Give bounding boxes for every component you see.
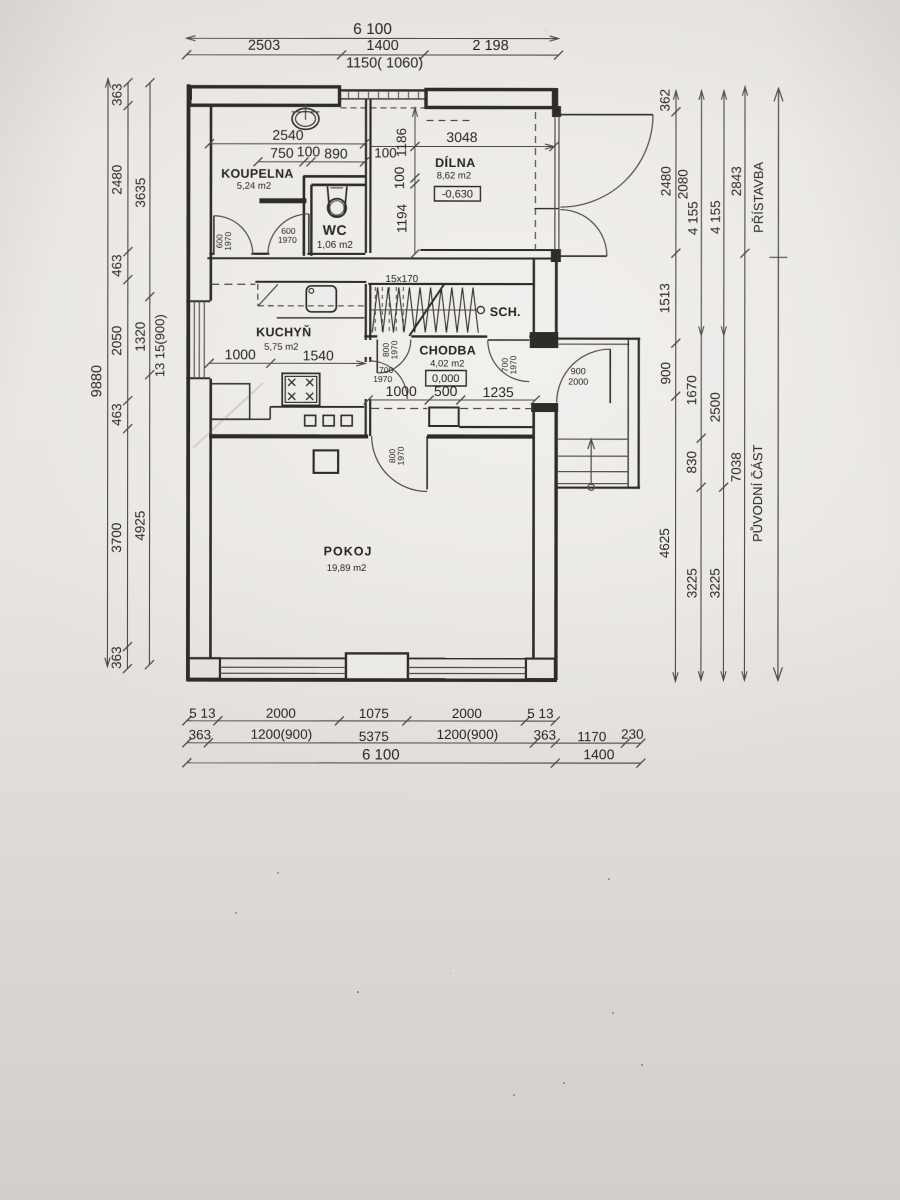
svg-text:1200(900): 1200(900) [251,727,313,742]
svg-text:1,06 m2: 1,06 m2 [317,240,354,251]
svg-text:PŮVODNÍ ČÁST: PŮVODNÍ ČÁST [750,445,765,543]
svg-text:100: 100 [392,167,407,190]
svg-text:7038: 7038 [729,452,744,482]
svg-text:830: 830 [684,451,699,474]
svg-text:5375: 5375 [359,729,389,744]
svg-text:2 198: 2 198 [472,38,508,54]
svg-text:2503: 2503 [248,38,280,54]
svg-text:KOUPELNA: KOUPELNA [221,167,294,181]
svg-text:5,24 m2: 5,24 m2 [237,181,271,192]
svg-text:1513: 1513 [657,283,672,313]
svg-text:750: 750 [270,145,294,161]
svg-text:2480: 2480 [658,166,673,196]
svg-text:13 15(900): 13 15(900) [152,314,167,377]
svg-text:363: 363 [110,83,125,106]
svg-text:1970: 1970 [396,446,406,465]
svg-text:230: 230 [621,727,644,742]
svg-text:15x170: 15x170 [385,274,418,285]
svg-text:8,62 m2: 8,62 m2 [437,170,471,181]
svg-text:SCH.: SCH. [490,305,521,319]
svg-text:2000: 2000 [568,377,588,387]
svg-text:1320: 1320 [133,322,148,352]
svg-text:100: 100 [297,143,321,159]
svg-text:2000: 2000 [266,706,296,721]
svg-text:2843: 2843 [729,166,744,196]
svg-text:3225: 3225 [708,568,723,598]
svg-text:2480: 2480 [109,165,124,195]
svg-text:500: 500 [434,383,458,399]
svg-text:3048: 3048 [446,129,477,145]
svg-text:4,02 m2: 4,02 m2 [430,358,464,369]
svg-text:-0,630: -0,630 [442,188,473,200]
svg-text:5 13: 5 13 [189,706,215,721]
svg-text:2050: 2050 [109,326,124,356]
svg-text:1400: 1400 [583,746,614,762]
svg-text:CHODBA: CHODBA [419,343,476,357]
svg-text:890: 890 [324,145,348,161]
svg-text:1970: 1970 [223,232,233,251]
svg-text:4 155: 4 155 [685,201,700,235]
svg-text:2000: 2000 [452,706,482,721]
svg-text:1170: 1170 [577,729,606,744]
svg-text:3225: 3225 [685,568,700,598]
svg-text:363: 363 [534,728,557,743]
svg-text:1970: 1970 [389,340,399,359]
svg-text:KUCHYŇ: KUCHYŇ [256,324,311,339]
svg-text:1075: 1075 [359,706,389,721]
svg-text:1970: 1970 [508,355,518,374]
svg-text:900: 900 [571,366,586,376]
svg-text:WC: WC [323,222,347,238]
svg-text:363: 363 [189,727,212,742]
svg-text:1000: 1000 [386,383,417,399]
svg-text:1540: 1540 [303,347,334,363]
svg-text:6 100: 6 100 [362,746,400,763]
svg-text:4 155: 4 155 [708,200,723,234]
svg-text:DÍLNA: DÍLNA [435,155,476,170]
svg-text:2080: 2080 [675,169,690,199]
svg-text:1400: 1400 [366,38,398,54]
svg-text:5 13: 5 13 [527,706,553,721]
svg-text:463: 463 [109,254,124,277]
svg-text:1970: 1970 [278,235,297,245]
svg-text:363: 363 [109,646,124,669]
svg-text:1200(900): 1200(900) [437,727,499,742]
svg-text:1000: 1000 [225,346,256,362]
svg-text:1670: 1670 [684,375,699,405]
svg-text:POKOJ: POKOJ [324,544,373,558]
svg-text:6 100: 6 100 [353,21,392,38]
svg-text:2500: 2500 [708,392,723,422]
svg-text:19,89 m2: 19,89 m2 [327,563,367,574]
svg-text:900: 900 [658,362,673,385]
svg-text:4625: 4625 [657,528,672,558]
svg-text:1150( 1060): 1150( 1060) [346,55,423,71]
svg-text:PŘÍSTAVBA: PŘÍSTAVBA [751,161,766,232]
svg-text:4925: 4925 [133,511,148,541]
svg-text:1235: 1235 [483,384,514,400]
svg-text:3635: 3635 [133,178,148,208]
svg-text:1194: 1194 [394,203,409,233]
svg-text:362: 362 [658,89,673,112]
svg-text:3700: 3700 [109,523,124,553]
svg-text:463: 463 [109,403,124,426]
svg-text:5,75 m2: 5,75 m2 [264,342,298,353]
svg-text:2540: 2540 [272,127,303,143]
svg-text:100: 100 [374,145,397,160]
svg-text:9880: 9880 [89,365,105,397]
